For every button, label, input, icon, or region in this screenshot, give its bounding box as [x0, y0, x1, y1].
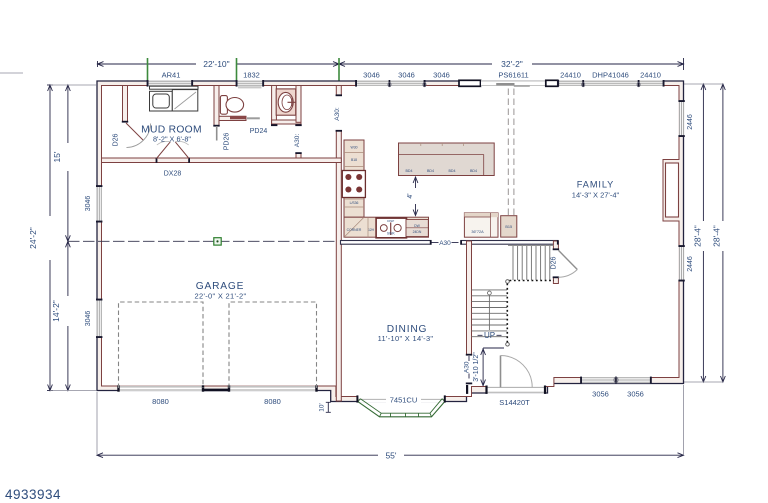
- svg-text:32'-2": 32'-2": [501, 59, 523, 69]
- svg-text:3046: 3046: [85, 311, 92, 327]
- svg-text:4': 4': [407, 193, 414, 198]
- svg-text:55': 55': [385, 451, 396, 461]
- svg-text:8080: 8080: [264, 397, 281, 406]
- svg-text:SINK: SINK: [387, 232, 396, 236]
- svg-text:3046: 3046: [433, 71, 450, 80]
- svg-text:W30: W30: [351, 146, 358, 150]
- svg-text:3'-10 1/2": 3'-10 1/2": [473, 352, 480, 382]
- svg-text:24DN: 24DN: [413, 230, 422, 234]
- svg-text:DX28: DX28: [164, 171, 182, 178]
- svg-text:DHP41046: DHP41046: [592, 71, 629, 80]
- svg-text:28'-4": 28'-4": [712, 225, 722, 247]
- svg-text:22'-0" X 21'-2": 22'-0" X 21'-2": [195, 292, 247, 301]
- svg-text:10': 10': [319, 403, 326, 411]
- svg-text:3056: 3056: [592, 390, 609, 399]
- svg-text:A30:: A30:: [294, 134, 301, 148]
- svg-text:A30:: A30:: [334, 107, 341, 121]
- svg-text:D26: D26: [113, 133, 120, 146]
- svg-text:8080: 8080: [152, 397, 169, 406]
- svg-text:B15: B15: [505, 225, 512, 229]
- svg-text:CORNER: CORNER: [347, 228, 362, 232]
- svg-text:PD26: PD26: [224, 133, 231, 151]
- svg-text:PD24: PD24: [250, 128, 268, 135]
- svg-text:A30: A30: [464, 361, 471, 373]
- svg-text:3056: 3056: [627, 390, 644, 399]
- svg-text:36"72A: 36"72A: [471, 230, 484, 234]
- svg-text:14'-2": 14'-2": [51, 300, 61, 322]
- svg-text:1832: 1832: [243, 71, 260, 80]
- svg-text:15': 15': [52, 151, 62, 162]
- svg-text:2446: 2446: [687, 256, 694, 272]
- svg-text:L/S36: L/S36: [350, 201, 359, 205]
- svg-text:4933934: 4933934: [5, 487, 61, 502]
- svg-text:3046: 3046: [363, 71, 380, 80]
- svg-text:PS61611: PS61611: [498, 71, 528, 80]
- svg-text:12H: 12H: [368, 228, 375, 232]
- svg-text:BD4: BD4: [427, 169, 434, 173]
- svg-text:BD4: BD4: [470, 169, 477, 173]
- svg-text:D26: D26: [551, 256, 558, 269]
- svg-text:8'-2" X 6'-8": 8'-2" X 6'-8": [153, 135, 191, 144]
- svg-text:3046: 3046: [85, 196, 92, 212]
- svg-text:FAMILY: FAMILY: [577, 180, 614, 190]
- svg-text:28'-4": 28'-4": [693, 225, 703, 247]
- svg-text:DW: DW: [414, 224, 420, 228]
- svg-text:3046: 3046: [398, 71, 415, 80]
- svg-text:AR41: AR41: [162, 71, 181, 80]
- svg-text:DISP: DISP: [387, 219, 394, 223]
- svg-text:A30: A30: [439, 240, 451, 247]
- svg-text:2446: 2446: [687, 114, 694, 130]
- svg-text:14'-3" X 27'-4": 14'-3" X 27'-4": [572, 190, 620, 199]
- svg-text:11'-10" X 14'-3": 11'-10" X 14'-3": [378, 334, 434, 343]
- svg-text:GARAGE: GARAGE: [196, 281, 244, 292]
- svg-text:24410: 24410: [640, 71, 661, 80]
- svg-text:BD4: BD4: [449, 169, 456, 173]
- svg-text:S14420T: S14420T: [499, 398, 530, 407]
- svg-text:22'-10": 22'-10": [203, 59, 229, 69]
- svg-text:7451CU: 7451CU: [390, 396, 418, 405]
- svg-text:BD4: BD4: [406, 169, 413, 173]
- svg-text:B18: B18: [351, 158, 357, 162]
- svg-text:24'-2": 24'-2": [28, 227, 38, 249]
- svg-text:UP: UP: [484, 331, 495, 340]
- svg-text:24410: 24410: [560, 71, 581, 80]
